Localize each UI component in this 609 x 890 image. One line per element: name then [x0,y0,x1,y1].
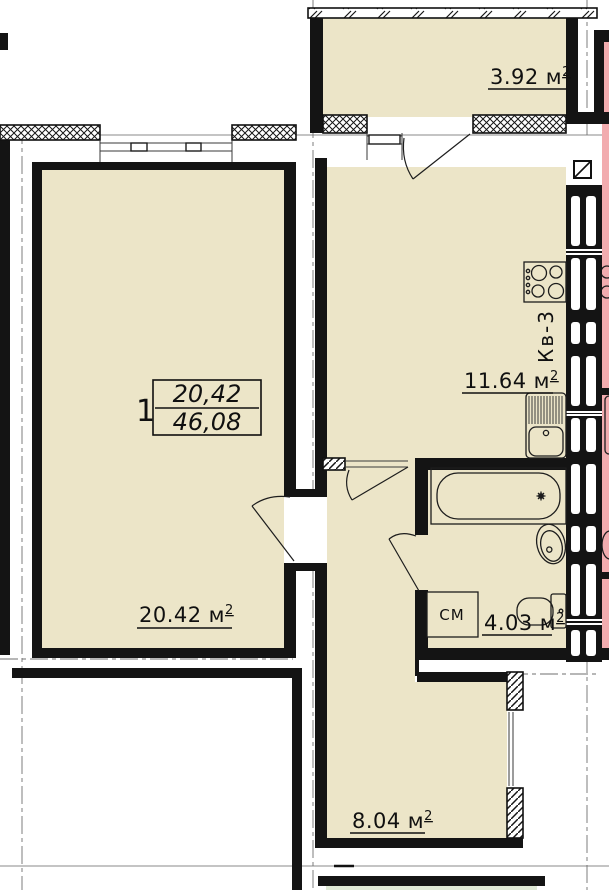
wall-living-top [32,162,296,170]
pier-balcony-right [473,115,566,133]
wall-living-bottom [32,648,296,658]
wall-bottom-room-bottom [315,838,523,848]
living-area-label: 20.42м2 [139,603,234,627]
room-fills [42,18,566,838]
floor-plan: СМ 3.92м2 11.64м2 20.42м2 4.03м2 8.04м2 … [0,0,609,890]
kitchen-area [327,167,566,458]
wall-lower-neighbor-top [12,668,302,678]
wall-neighbor-vertical [594,42,604,118]
bottom-room-area-label: 8.04м2 [352,809,433,833]
window-frame-icon [369,135,400,144]
wall-balcony-left [310,8,323,133]
wall-door-cap-bottom [284,563,327,571]
wall-bathroom-bottom [415,648,582,660]
neighbor-balcony-strip [604,42,609,112]
window-frame-icon [131,143,147,151]
apartment-total-area: 46,08 [173,408,242,436]
bathroom-area-label: 4.03м2 [484,611,565,635]
door-opening-living [284,497,327,563]
wall-living-right-upper [284,162,296,489]
wall-hall-left-lower [315,571,327,848]
living-room-window [100,140,232,162]
wall-lower-neighbor-right [292,668,302,890]
floor-plan-drawing: СМ 3.92м2 11.64м2 20.42м2 4.03м2 8.04м2 … [0,0,609,890]
balcony-window [367,133,402,160]
washing-machine-label: СМ [439,606,464,624]
washing-machine-box: СМ [427,592,478,637]
wall-living-left [32,162,42,658]
wall-door-cap-top [284,489,327,497]
wall-outer-left-stub [0,33,8,50]
apartment-living-area: 20,42 [173,380,242,408]
pier-balcony-left [323,115,367,133]
pier-bottom-room-upper [507,672,523,710]
door-opening-bathroom [415,535,428,590]
wall-lower-room-top [318,876,545,886]
wall-neighbor-top-stub [594,30,609,42]
bottom-room-opening [509,712,513,786]
living-room-area [42,170,284,648]
pier-kitchen-door [323,458,345,470]
vent-hatch-icon [574,161,591,178]
wall-bathroom-left-upper [415,470,428,535]
hall-area [327,458,415,682]
window-frame-icon [186,143,201,151]
pier-living-window-right [232,125,296,140]
balcony-area-label: 3.92м2 [490,65,571,89]
pier-living-window-left [0,125,100,140]
vent-shaft-column [566,161,602,662]
wall-outer-left [0,125,10,655]
balcony-rail [308,8,597,18]
kitchen-area-label: 11.64м2 [464,369,559,393]
wall-hall-right-sliver [415,658,419,676]
wall-hall-left-upper [315,158,327,489]
flat-reference-label: Кв-3 [534,309,558,363]
wall-neighbor-bottom [578,112,609,124]
wall-bottom-room-top [417,672,507,682]
pier-bottom-room-lower [507,788,523,838]
wall-living-right-lower [284,571,296,658]
wall-bathroom-left-lower [415,590,428,648]
